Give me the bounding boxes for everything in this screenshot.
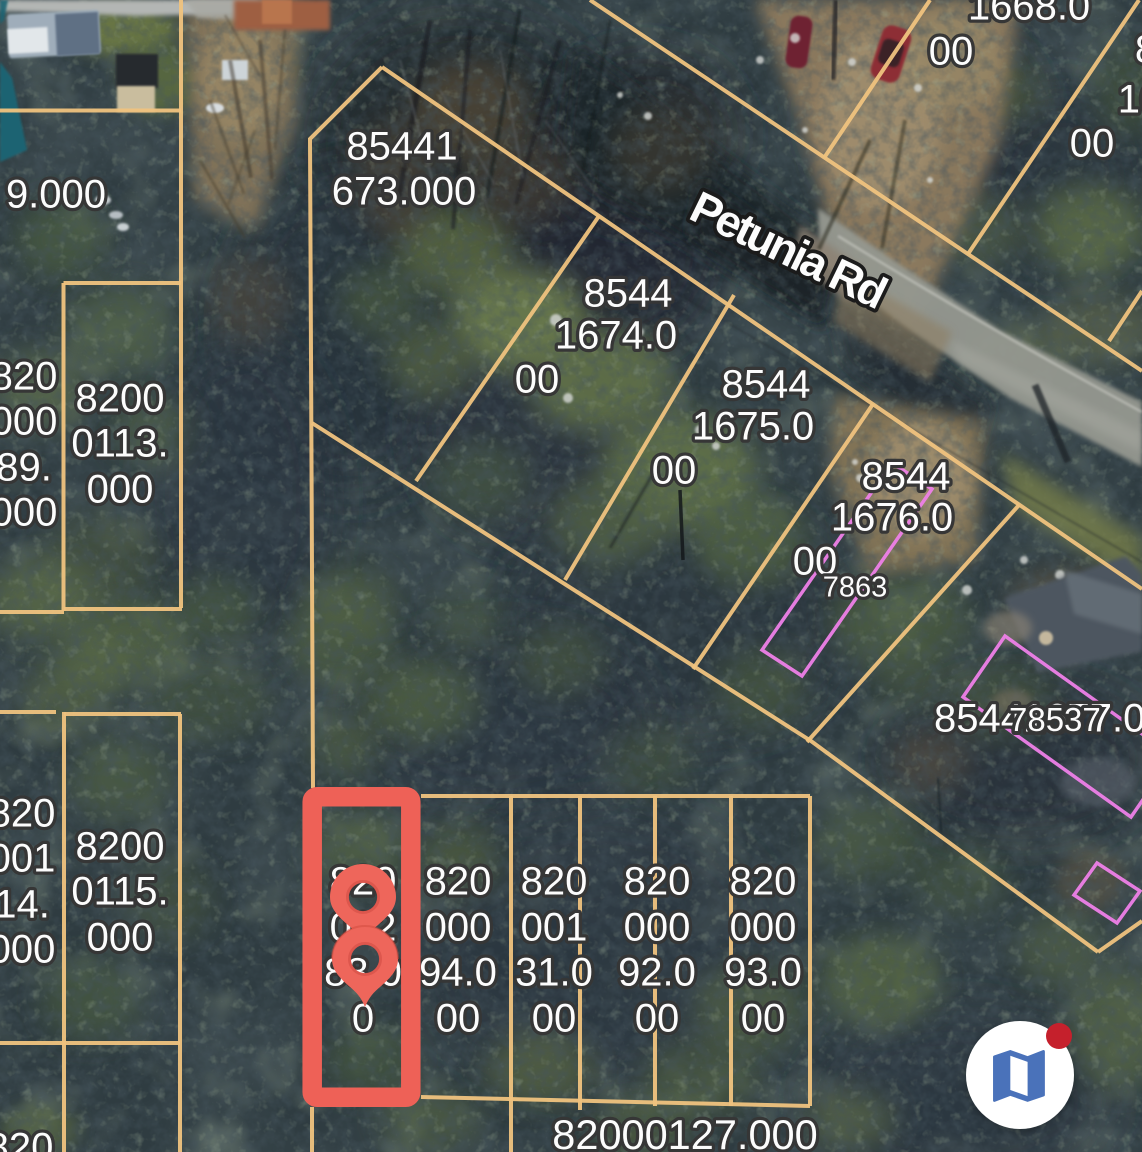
svg-text:8200: 8200 bbox=[76, 824, 165, 868]
svg-text:1668.0: 1668.0 bbox=[968, 0, 1090, 28]
svg-text:820: 820 bbox=[730, 859, 797, 903]
svg-text:8544: 8544 bbox=[862, 454, 951, 498]
svg-text:001: 001 bbox=[521, 905, 588, 949]
svg-text:0113.: 0113. bbox=[71, 421, 168, 465]
svg-text:8: 8 bbox=[1135, 27, 1142, 71]
svg-text:000: 000 bbox=[730, 905, 797, 949]
svg-text:000: 000 bbox=[624, 905, 691, 949]
svg-text:31.0: 31.0 bbox=[515, 950, 593, 994]
svg-text:1674.0: 1674.0 bbox=[555, 313, 677, 357]
svg-text:94.0: 94.0 bbox=[419, 950, 497, 994]
svg-text:16: 16 bbox=[1118, 77, 1142, 121]
svg-text:14.: 14. bbox=[0, 882, 50, 926]
svg-text:00: 00 bbox=[532, 996, 577, 1040]
svg-text:001: 001 bbox=[0, 836, 55, 880]
svg-text:000: 000 bbox=[87, 467, 154, 511]
svg-text:00: 00 bbox=[652, 448, 697, 492]
svg-text:673.000: 673.000 bbox=[332, 169, 477, 213]
svg-text:000: 000 bbox=[0, 399, 57, 443]
svg-text:92.0: 92.0 bbox=[618, 950, 696, 994]
svg-text:9.000: 9.000 bbox=[6, 172, 106, 216]
svg-text:000: 000 bbox=[0, 927, 55, 971]
svg-text:00: 00 bbox=[515, 357, 560, 401]
svg-text:820: 820 bbox=[0, 1125, 53, 1152]
svg-text:8544: 8544 bbox=[584, 271, 673, 315]
svg-text:000: 000 bbox=[425, 905, 492, 949]
svg-text:93.0: 93.0 bbox=[724, 950, 802, 994]
svg-text:78537: 78537 bbox=[1009, 701, 1101, 738]
svg-text:820: 820 bbox=[425, 859, 492, 903]
svg-text:820: 820 bbox=[521, 859, 588, 903]
svg-text:0115.: 0115. bbox=[71, 869, 168, 913]
svg-text:89.: 89. bbox=[0, 445, 52, 489]
svg-text:00: 00 bbox=[635, 996, 680, 1040]
svg-text:8200: 8200 bbox=[76, 376, 165, 420]
svg-text:00: 00 bbox=[741, 996, 786, 1040]
svg-text:000: 000 bbox=[0, 490, 57, 534]
svg-text:00: 00 bbox=[1070, 121, 1115, 165]
svg-text:0: 0 bbox=[352, 996, 374, 1040]
svg-text:1675.0: 1675.0 bbox=[692, 404, 814, 448]
svg-text:000: 000 bbox=[87, 915, 154, 959]
svg-text:820: 820 bbox=[0, 791, 55, 835]
svg-text:1676.0: 1676.0 bbox=[831, 495, 953, 539]
svg-text:820: 820 bbox=[624, 859, 691, 903]
svg-text:00: 00 bbox=[929, 29, 974, 73]
svg-text:8544: 8544 bbox=[722, 362, 811, 406]
svg-text:7863: 7863 bbox=[823, 571, 888, 603]
svg-text:85441: 85441 bbox=[346, 124, 457, 168]
svg-text:00: 00 bbox=[436, 996, 481, 1040]
svg-text:82000127.000: 82000127.000 bbox=[552, 1111, 817, 1152]
svg-text:820: 820 bbox=[0, 354, 57, 398]
